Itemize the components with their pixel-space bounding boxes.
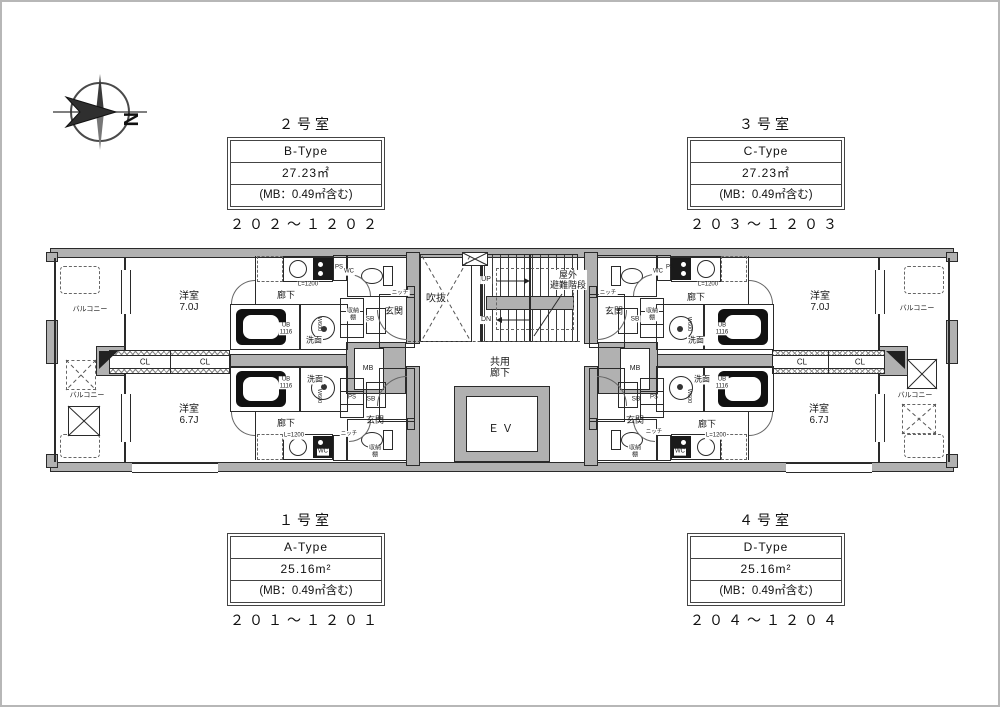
plan-label: UB 1116 xyxy=(715,322,729,335)
balcony-planter-right-top xyxy=(904,266,944,294)
room-door-arc xyxy=(231,412,255,436)
unit4-mb-note: (MB：0.49㎡含む) xyxy=(691,580,841,602)
bathtub-inner xyxy=(725,315,761,339)
kitchen-sink-icon xyxy=(289,438,307,456)
unit3-room-range: ２０３～１２０３ xyxy=(680,214,852,234)
plan-label: UB 1116 xyxy=(715,376,729,389)
balcony-hatch-box-left xyxy=(66,360,96,390)
room-partition xyxy=(255,412,256,460)
balcony-shaft-left xyxy=(68,406,100,436)
plan-label: W600 xyxy=(316,389,322,403)
shelf-line xyxy=(641,391,663,392)
plan-label: 廊下 xyxy=(698,419,716,429)
balcony-rail-right xyxy=(948,258,950,462)
plan-label: 玄関 xyxy=(605,306,623,316)
niche-box xyxy=(407,418,415,430)
unit2-title: ２号室 xyxy=(220,114,392,134)
room-partition xyxy=(255,256,256,304)
plan-label: WC xyxy=(343,269,355,276)
plan-label: UB 1116 xyxy=(279,376,293,389)
unit3-mb-note: (MB：0.49㎡含む) xyxy=(691,184,841,206)
fridge-space xyxy=(721,256,747,282)
unit-c-interior xyxy=(587,252,777,352)
unit1-title: １号室 xyxy=(220,510,392,530)
plan-label: PS xyxy=(348,395,356,402)
shelf-line xyxy=(341,404,363,405)
plan-label: WC xyxy=(317,449,329,456)
shelf-line xyxy=(341,391,363,392)
roof-vent-box xyxy=(462,252,488,266)
washbasin-drain xyxy=(677,384,683,390)
unit1-mb-note: (MB：0.49㎡含む) xyxy=(231,580,381,602)
stove-burner-icon xyxy=(681,440,686,445)
plan-label: 洋室 7.0J xyxy=(179,291,199,313)
plan-label: PS xyxy=(666,265,674,272)
unit4-title: ４号室 xyxy=(680,510,852,530)
plan-label: DN xyxy=(480,316,492,324)
plan-label: CL xyxy=(139,359,151,368)
unit3-spec-table: C-Type 27.23㎡ (MB：0.49㎡含む) xyxy=(687,137,845,210)
bathtub-inner xyxy=(725,377,761,401)
plan-label: バルコニー xyxy=(898,392,933,400)
plan-label: ＥＶ xyxy=(488,423,516,435)
plan-label: 洗面 xyxy=(305,337,323,346)
unit4-type: D-Type xyxy=(691,537,841,558)
unit-block-2: ２号室 B-Type 27.23㎡ (MB：0.49㎡含む) ２０２～１２０２ xyxy=(220,114,392,234)
plan-label: 収納 棚 xyxy=(628,445,642,458)
toilet-tank-icon xyxy=(383,266,393,286)
compass-north-icon: N xyxy=(50,66,160,158)
stove-burner-icon xyxy=(318,440,323,445)
shelf-line xyxy=(641,324,663,325)
plan-label: WC xyxy=(652,269,664,276)
plan-label: CL xyxy=(796,359,808,368)
unit-block-4: ４号室 D-Type 25.16m² (MB：0.49㎡含む) ２０４～１２０４ xyxy=(680,510,852,630)
balcony-planter-left-bottom xyxy=(60,434,100,458)
plan-label: UB 1116 xyxy=(279,322,293,335)
plan-label: PS xyxy=(650,395,658,402)
corridor-boundary-dashed xyxy=(408,341,580,342)
compass-n-label: N xyxy=(119,112,141,126)
window-right-upper xyxy=(875,270,885,314)
toilet-tank-icon xyxy=(611,430,621,450)
stove-burner-icon xyxy=(681,271,686,276)
balcony-planter-left-top xyxy=(60,266,100,294)
unit-block-3: ３号室 C-Type 27.23㎡ (MB：0.49㎡含む) ２０３～１２０３ xyxy=(680,114,852,234)
plan-label: SB xyxy=(632,395,641,402)
plan-label: UP xyxy=(480,276,492,284)
plan-label: 洗面 xyxy=(693,376,711,385)
window-left-upper xyxy=(121,270,131,314)
bathtub-inner xyxy=(243,377,279,401)
shelf-line xyxy=(641,404,663,405)
unit-block-1: １号室 A-Type 25.16m² (MB：0.49㎡含む) ２０１～１２０１ xyxy=(220,510,392,630)
unit4-spec-table: D-Type 25.16m² (MB：0.49㎡含む) xyxy=(687,533,845,606)
fridge-space xyxy=(257,434,283,460)
plan-label: PS xyxy=(335,265,343,272)
plan-label: 洋室 6.7J xyxy=(809,404,829,426)
plan-label: 洋室 6.7J xyxy=(179,404,199,426)
kitchen-sink-icon xyxy=(289,260,307,278)
unit2-area: 27.23㎡ xyxy=(231,162,381,184)
pipe-space-box xyxy=(657,435,671,461)
plan-label: 廊下 xyxy=(687,292,705,302)
unit2-type: B-Type xyxy=(231,141,381,162)
plan-label: バルコニー xyxy=(900,305,935,313)
niche-box xyxy=(589,286,597,298)
plan-label: L=1200 xyxy=(283,433,305,440)
room-door-arc xyxy=(749,280,773,304)
unit1-area: 25.16m² xyxy=(231,558,381,580)
washbasin-drain xyxy=(677,326,683,332)
plan-label: CL xyxy=(854,359,866,368)
plan-label: 洗面 xyxy=(306,376,324,385)
plan-label: 玄関 xyxy=(626,415,644,425)
plan-label: L=1200 xyxy=(705,433,727,440)
plan-label: 収納 棚 xyxy=(346,308,360,321)
pipe-space-box xyxy=(333,435,347,461)
edge-stub-left-bottom xyxy=(46,454,58,468)
stove-burner-icon xyxy=(318,262,323,267)
unit1-type: A-Type xyxy=(231,537,381,558)
unit4-room-range: ２０４～１２０４ xyxy=(680,610,852,630)
balcony-shaft-right xyxy=(907,359,937,389)
plan-label: 玄関 xyxy=(366,415,384,425)
plan-label: SB xyxy=(367,395,376,402)
stove-burner-icon xyxy=(318,271,323,276)
window-left-lower xyxy=(121,394,131,442)
closet-divider-right xyxy=(828,350,829,374)
plan-label: 共用 廊下 xyxy=(490,357,510,379)
plan-label: 廊下 xyxy=(277,290,295,300)
plan-label: 吹抜 xyxy=(425,293,447,304)
plan-label: バルコニー xyxy=(73,306,108,314)
bathtub-inner xyxy=(243,315,279,339)
kitchen-sink-icon xyxy=(697,260,715,278)
plan-label: 洗面 xyxy=(687,337,705,346)
unit2-spec-table: B-Type 27.23㎡ (MB：0.49㎡含む) xyxy=(227,137,385,210)
shelf-line xyxy=(341,324,363,325)
plan-label: SB xyxy=(630,315,641,322)
plan-label: SB xyxy=(365,315,376,322)
plan-label: 収納 棚 xyxy=(368,445,382,458)
balcony-rail-left xyxy=(54,258,56,462)
plan-label: L=1200 xyxy=(297,282,319,289)
plan-label: WC xyxy=(674,449,686,456)
stove-icon xyxy=(313,258,333,280)
unit2-room-range: ２０２～１２０２ xyxy=(220,214,392,234)
toilet-tank-icon xyxy=(383,430,393,450)
unit3-area: 27.23㎡ xyxy=(691,162,841,184)
plan-label: バルコニー xyxy=(70,392,105,400)
stove-burner-icon xyxy=(681,262,686,267)
plan-label: ニッチ xyxy=(645,429,664,435)
unit3-title: ３号室 xyxy=(680,114,852,134)
plan-label: 収納 棚 xyxy=(645,308,659,321)
window-right-lower xyxy=(875,394,885,442)
plan-label: ニッチ xyxy=(391,290,410,296)
kitchen-sink-icon xyxy=(697,438,715,456)
edge-stub-left-mid xyxy=(46,320,58,364)
edge-stub-left-top xyxy=(46,252,58,262)
plan-label: MB xyxy=(363,365,374,373)
room-door-arc xyxy=(231,280,255,304)
plan-label: 玄関 xyxy=(385,306,403,316)
closet-divider-left xyxy=(170,350,171,374)
niche-box xyxy=(589,418,597,430)
plan-label: 洋室 7.0J xyxy=(810,291,830,313)
unit3-type: C-Type xyxy=(691,141,841,162)
floorplan-sheet: N ２号室 B-Type 27.23㎡ (MB：0.49㎡含む) ２０２～１２０… xyxy=(0,0,1000,707)
plan-label: W600 xyxy=(686,389,692,403)
plan-label: 屋外 避難階段 xyxy=(549,270,587,290)
plan-label: W600 xyxy=(686,317,692,331)
plan-label: 廊下 xyxy=(277,418,295,428)
fridge-space xyxy=(257,256,283,282)
balcony-planter-right-bottom xyxy=(904,434,944,458)
plan-label: ニッチ xyxy=(340,431,359,437)
unit1-room-range: ２０１～１２０１ xyxy=(220,610,392,630)
window-bottom-right xyxy=(786,463,872,473)
plan-label: CL xyxy=(199,359,211,368)
unit1-spec-table: A-Type 25.16m² (MB：0.49㎡含む) xyxy=(227,533,385,606)
window-bottom-left xyxy=(132,463,218,473)
toilet-tank-icon xyxy=(611,266,621,286)
room-door-arc xyxy=(749,412,773,436)
unit2-mb-note: (MB：0.49㎡含む) xyxy=(231,184,381,206)
balcony-hatch-box-right xyxy=(902,404,936,434)
unit4-area: 25.16m² xyxy=(691,558,841,580)
plan-label: L=1200 xyxy=(697,282,719,289)
plan-label: ニッチ xyxy=(599,290,618,296)
plan-label: W600 xyxy=(316,317,322,331)
plan-label: MB xyxy=(630,365,641,373)
